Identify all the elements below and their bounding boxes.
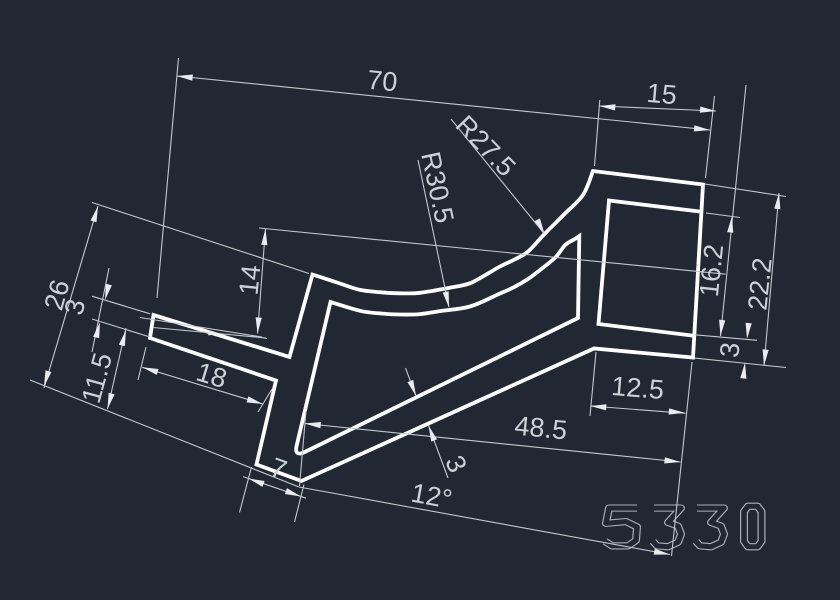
svg-text:48.5: 48.5 [513, 411, 568, 446]
svg-text:16.2: 16.2 [694, 243, 729, 298]
svg-text:15: 15 [646, 78, 679, 111]
svg-text:70: 70 [366, 65, 399, 98]
svg-text:22.2: 22.2 [742, 256, 777, 311]
svg-text:14: 14 [234, 264, 267, 297]
svg-text:3: 3 [714, 341, 745, 359]
svg-text:12.5: 12.5 [610, 371, 665, 405]
